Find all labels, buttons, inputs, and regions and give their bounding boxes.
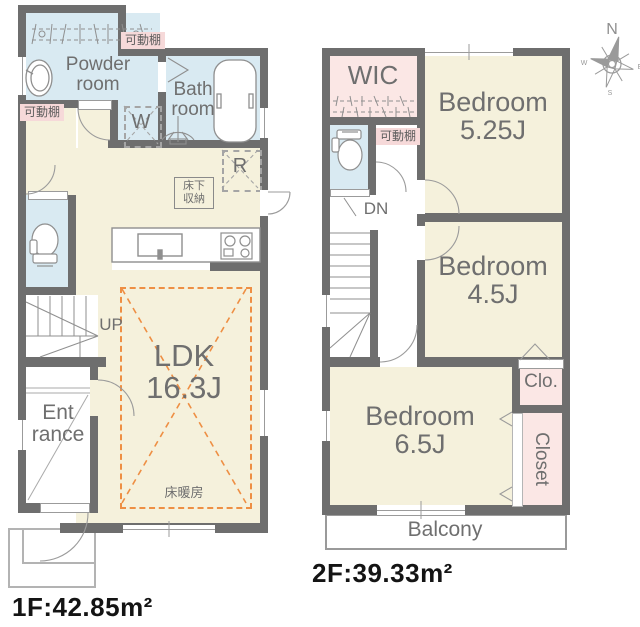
label-shelf-2f: 可動棚 (376, 128, 420, 145)
label-entrance: Ent rance (28, 402, 88, 446)
label-powder-room: Powder room (40, 55, 156, 95)
label-stairs-down: DN (356, 200, 396, 218)
label-1f-area: 1F:42.85m² (12, 592, 153, 623)
label-bedroom-525-line2: 5.25J (460, 115, 526, 145)
toilet-icon-2f (332, 130, 362, 170)
stairs-lines-1f (26, 296, 98, 357)
label-shelf-left: 可動棚 (20, 104, 64, 121)
label-ldk: LDK 16.3J (120, 340, 248, 404)
stairs-lines-2f (330, 198, 370, 357)
wic-rails-icon (333, 96, 414, 117)
label-bedroom-65-line2: 6.5J (394, 429, 445, 459)
label-bedroom-525: Bedroom 5.25J (428, 88, 558, 144)
label-powder-line1: Powder (66, 54, 130, 75)
shower-drain-icon (162, 116, 194, 144)
label-entrance-line2: rance (32, 423, 85, 446)
label-clo: Clo. (520, 372, 562, 392)
label-bedroom-45: Bedroom 4.5J (428, 252, 558, 308)
label-ldk-line1: LDK (154, 338, 214, 373)
label-balcony: Balcony (340, 519, 550, 541)
label-closet: Closet (531, 419, 551, 499)
floor-plan-canvas: Powder room Bath room 可動棚 可動棚 W R 床下 収納 … (0, 0, 640, 627)
label-washer-space: W (124, 112, 158, 133)
compass-east-label: E (634, 64, 640, 71)
label-bedroom-45-line1: Bedroom (438, 251, 548, 281)
compass-icon (585, 32, 640, 93)
label-floor-heating: 床暖房 (148, 486, 220, 500)
label-bedroom-45-line2: 4.5J (467, 279, 518, 309)
label-bath-line1: Bath (173, 79, 212, 100)
compass-west-label: W (578, 60, 590, 67)
label-bath-room: Bath room (148, 80, 238, 120)
label-bedroom-525-line1: Bedroom (438, 87, 548, 117)
compass-north-label: N (598, 22, 626, 39)
label-fridge-space: R (222, 156, 258, 177)
toilet-icon-1f (30, 224, 58, 266)
label-bedroom-65-line1: Bedroom (365, 401, 475, 431)
underfloor-storage-line1: 床下 (183, 180, 205, 192)
underfloor-storage-line2: 収納 (183, 193, 205, 205)
label-ldk-line2: 16.3J (146, 370, 222, 405)
label-powder-line2: room (76, 74, 119, 95)
compass-south-label: S (604, 90, 616, 97)
label-underfloor-storage: 床下 収納 (174, 177, 214, 209)
label-stairs-up: UP (92, 316, 130, 334)
label-bath-line2: room (171, 99, 214, 120)
label-2f-area: 2F:39.33m² (312, 558, 453, 589)
label-shelf-top: 可動棚 (121, 32, 165, 49)
label-wic: WIC (338, 62, 408, 89)
label-bedroom-65: Bedroom 6.5J (350, 402, 490, 458)
label-entrance-line1: Ent (42, 401, 74, 424)
